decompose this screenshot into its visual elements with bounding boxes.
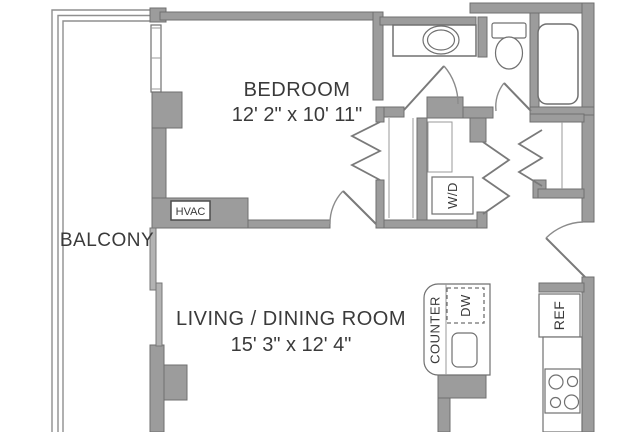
counter-label: COUNTER [428, 296, 443, 364]
bathroom-hall-door [496, 83, 531, 111]
wall-segment [438, 398, 450, 432]
entry-door [546, 222, 585, 277]
washer-dryer-label: W/D [445, 182, 460, 209]
wall-segment [376, 107, 384, 122]
bedroom-window [151, 25, 161, 92]
toilet-tank [492, 23, 526, 38]
bedroom-closet-bifold-door [352, 122, 380, 180]
bedroom-dimensions: 12' 2" x 10' 11" [232, 104, 362, 126]
bedroom-door [330, 191, 376, 224]
wall-segment [538, 189, 584, 198]
kitchen-wall-run: REF [539, 294, 582, 432]
refrigerator-label: REF [551, 301, 567, 331]
wall-segment [150, 345, 164, 432]
bathtub [538, 24, 578, 104]
wall-segment [470, 118, 486, 142]
wall-segment [530, 114, 584, 122]
wall-segment [152, 128, 166, 198]
floor-plan-drawing: W/D HVAC COUNTER DW REF BEDROOM 12' 2" x… [0, 0, 640, 432]
balcony-railing [52, 10, 151, 432]
wall-segment [376, 180, 384, 228]
hall-closet-bifold-door [519, 130, 542, 186]
bedroom-label: BEDROOM [244, 79, 351, 101]
toilet-bowl [496, 37, 523, 69]
wall-segment [539, 283, 584, 292]
walls [150, 3, 594, 432]
wall-segment [582, 277, 594, 432]
hvac: HVAC [171, 201, 210, 220]
wall-segment [380, 17, 476, 25]
wall-segment [160, 12, 380, 20]
island-sink [452, 333, 477, 367]
wall-segment [164, 365, 187, 400]
wall-segment [477, 212, 487, 228]
wall-segment [384, 220, 487, 228]
balcony-label: BALCONY [60, 230, 154, 251]
wall-segment [478, 17, 487, 57]
wall-segment [438, 375, 486, 398]
laundry-closet-bifold-door [483, 142, 509, 214]
laundry: W/D [432, 177, 473, 214]
sink-basin-icon [428, 30, 455, 50]
living-dining-label: LIVING / DINING ROOM [176, 308, 406, 330]
hvac-label: HVAC [176, 206, 206, 218]
wall-segment [417, 118, 427, 220]
wall-segment [248, 220, 330, 228]
kitchen-island: COUNTER DW [424, 284, 490, 375]
living-dining-dimensions: 15' 3" x 12' 4" [231, 334, 352, 356]
floor-plan: W/D HVAC COUNTER DW REF BEDROOM 12' 2" x… [0, 0, 640, 432]
wall-segment [463, 107, 493, 118]
burner-icon [568, 377, 578, 387]
wall-segment [470, 3, 590, 13]
burner-icon [549, 375, 563, 389]
burner-icon [565, 395, 579, 409]
burner-icon [551, 398, 561, 408]
dishwasher-label: DW [458, 294, 473, 317]
wall-segment [152, 92, 182, 128]
